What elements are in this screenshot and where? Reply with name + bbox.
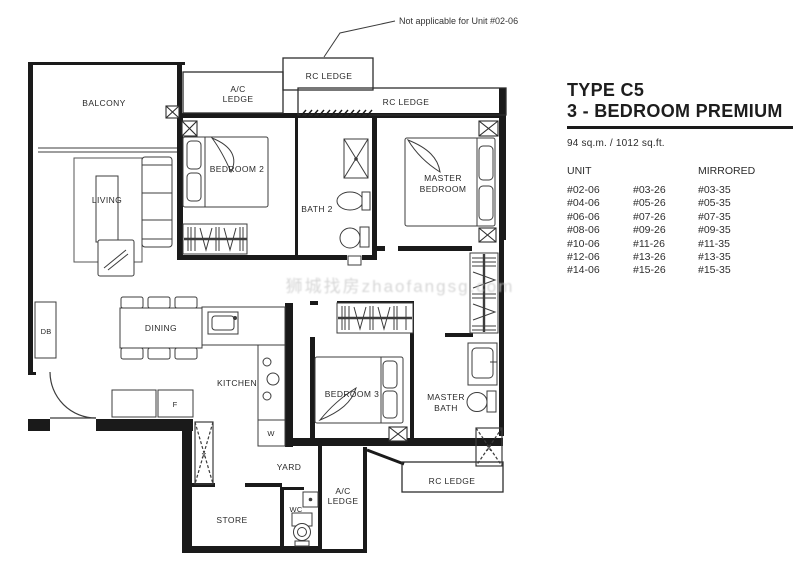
label-ac-ledge-bottom-1: A/C	[335, 486, 350, 496]
unit-cell: #15-26	[633, 264, 698, 277]
unit-cell: #08-06	[567, 224, 633, 237]
label-ac-ledge-bottom-2: LEDGE	[328, 496, 359, 506]
hob	[263, 358, 279, 400]
unit-row: #10-06#11-26#11-35	[567, 238, 793, 251]
unit-cell: #04-06	[567, 197, 633, 210]
unit-area: 94 sq.m. / 1012 sq.ft.	[567, 138, 793, 149]
label-balcony: BALCONY	[82, 98, 125, 108]
label-master-bath-2: BATH	[434, 403, 458, 413]
label-dining: DINING	[145, 323, 177, 333]
unit-cell: #09-26	[633, 224, 698, 237]
wc-fixtures	[292, 492, 318, 546]
unit-cell: #13-35	[698, 251, 793, 264]
info-panel: TYPE C5 3 - BEDROOM PREMIUM 94 sq.m. / 1…	[567, 80, 793, 278]
floor-plan-svg: Not applicable for Unit #02-06 狮城找房zhaof…	[0, 0, 545, 572]
unit-cell: #15-35	[698, 264, 793, 277]
label-master-bedroom-1: MASTER	[424, 173, 462, 183]
unit-row: #06-06#07-26#07-35	[567, 211, 793, 224]
wardrobe-bedroom2	[183, 224, 247, 254]
watermark: 狮城找房zhaofangsg.com	[286, 277, 515, 296]
type-subtitle: 3 - BEDROOM PREMIUM	[567, 101, 793, 122]
title-rule	[567, 126, 793, 129]
col-header-mirrored: MIRRORED	[698, 165, 793, 177]
bath2-fixtures	[337, 139, 370, 248]
label-yard: YARD	[277, 462, 302, 472]
unit-row: #14-06#15-26#15-35	[567, 264, 793, 277]
label-ac-ledge-top-1: A/C	[230, 84, 245, 94]
unit-cell: #10-06	[567, 238, 633, 251]
label-shaft-right: X	[486, 444, 491, 453]
label-rc-ledge-small: RC LEDGE	[306, 71, 353, 81]
label-fridge: F	[173, 400, 178, 409]
label-wc: WC	[290, 505, 303, 514]
unit-cell: #07-26	[633, 211, 698, 224]
balcony-slider	[38, 148, 177, 152]
sofa	[142, 157, 172, 247]
unit-cell: #05-26	[633, 197, 698, 210]
master-bath-fixtures	[467, 343, 497, 412]
unit-cell: #14-06	[567, 264, 633, 277]
label-kitchen: KITCHEN	[217, 378, 257, 388]
unit-cell: #11-35	[698, 238, 793, 251]
label-bedroom3: BEDROOM 3	[325, 389, 380, 399]
unit-cell: #07-35	[698, 211, 793, 224]
unit-table-header: UNIT MIRRORED	[567, 165, 793, 177]
col-header-unit: UNIT	[567, 165, 698, 177]
unit-cell: #11-26	[633, 238, 698, 251]
unit-row: #02-06#03-26#03-35	[567, 184, 793, 197]
unit-table-body: #02-06#03-26#03-35#04-06#05-26#05-35#06-…	[567, 184, 793, 278]
unit-cell: #13-26	[633, 251, 698, 264]
cabinet	[112, 390, 156, 417]
label-master-bedroom-2: BEDROOM	[420, 184, 467, 194]
label-bedroom2: BEDROOM 2	[210, 164, 265, 174]
unit-cell: #12-06	[567, 251, 633, 264]
unit-row: #04-06#05-26#05-35	[567, 197, 793, 210]
ledges	[183, 58, 506, 492]
label-rc-ledge-band: RC LEDGE	[383, 97, 430, 107]
label-shaft-left: X	[201, 451, 206, 460]
label-bath2: BATH 2	[301, 204, 333, 214]
label-washer: W	[267, 429, 275, 438]
annotation-note: Not applicable for Unit #02-06	[399, 16, 518, 26]
label-rc-ledge-bottom: RC LEDGE	[429, 476, 476, 486]
unit-cell: #03-35	[698, 184, 793, 197]
floor-plan: Not applicable for Unit #02-06 狮城找房zhaof…	[0, 0, 545, 572]
diagonal-wall	[367, 450, 404, 464]
label-ac-ledge-top-2: LEDGE	[223, 94, 254, 104]
annotation: Not applicable for Unit #02-06	[324, 16, 518, 57]
label-living: LIVING	[92, 195, 122, 205]
label-master-bath-1: MASTER	[427, 392, 465, 402]
label-db: DB	[41, 327, 52, 336]
bath2-door	[348, 256, 361, 265]
unit-cell: #05-35	[698, 197, 793, 210]
unit-cell: #06-06	[567, 211, 633, 224]
label-store: STORE	[216, 515, 247, 525]
unit-cell: #03-26	[633, 184, 698, 197]
entrance-door	[50, 372, 96, 418]
wardrobe-bedroom3	[337, 303, 413, 333]
kitchen-sink	[208, 312, 238, 334]
armchair	[98, 240, 134, 276]
coffee-table	[96, 176, 118, 242]
unit-cell: #02-06	[567, 184, 633, 197]
unit-row: #12-06#13-26#13-35	[567, 251, 793, 264]
type-title: TYPE C5	[567, 80, 793, 101]
unit-row: #08-06#09-26#09-35	[567, 224, 793, 237]
unit-cell: #09-35	[698, 224, 793, 237]
